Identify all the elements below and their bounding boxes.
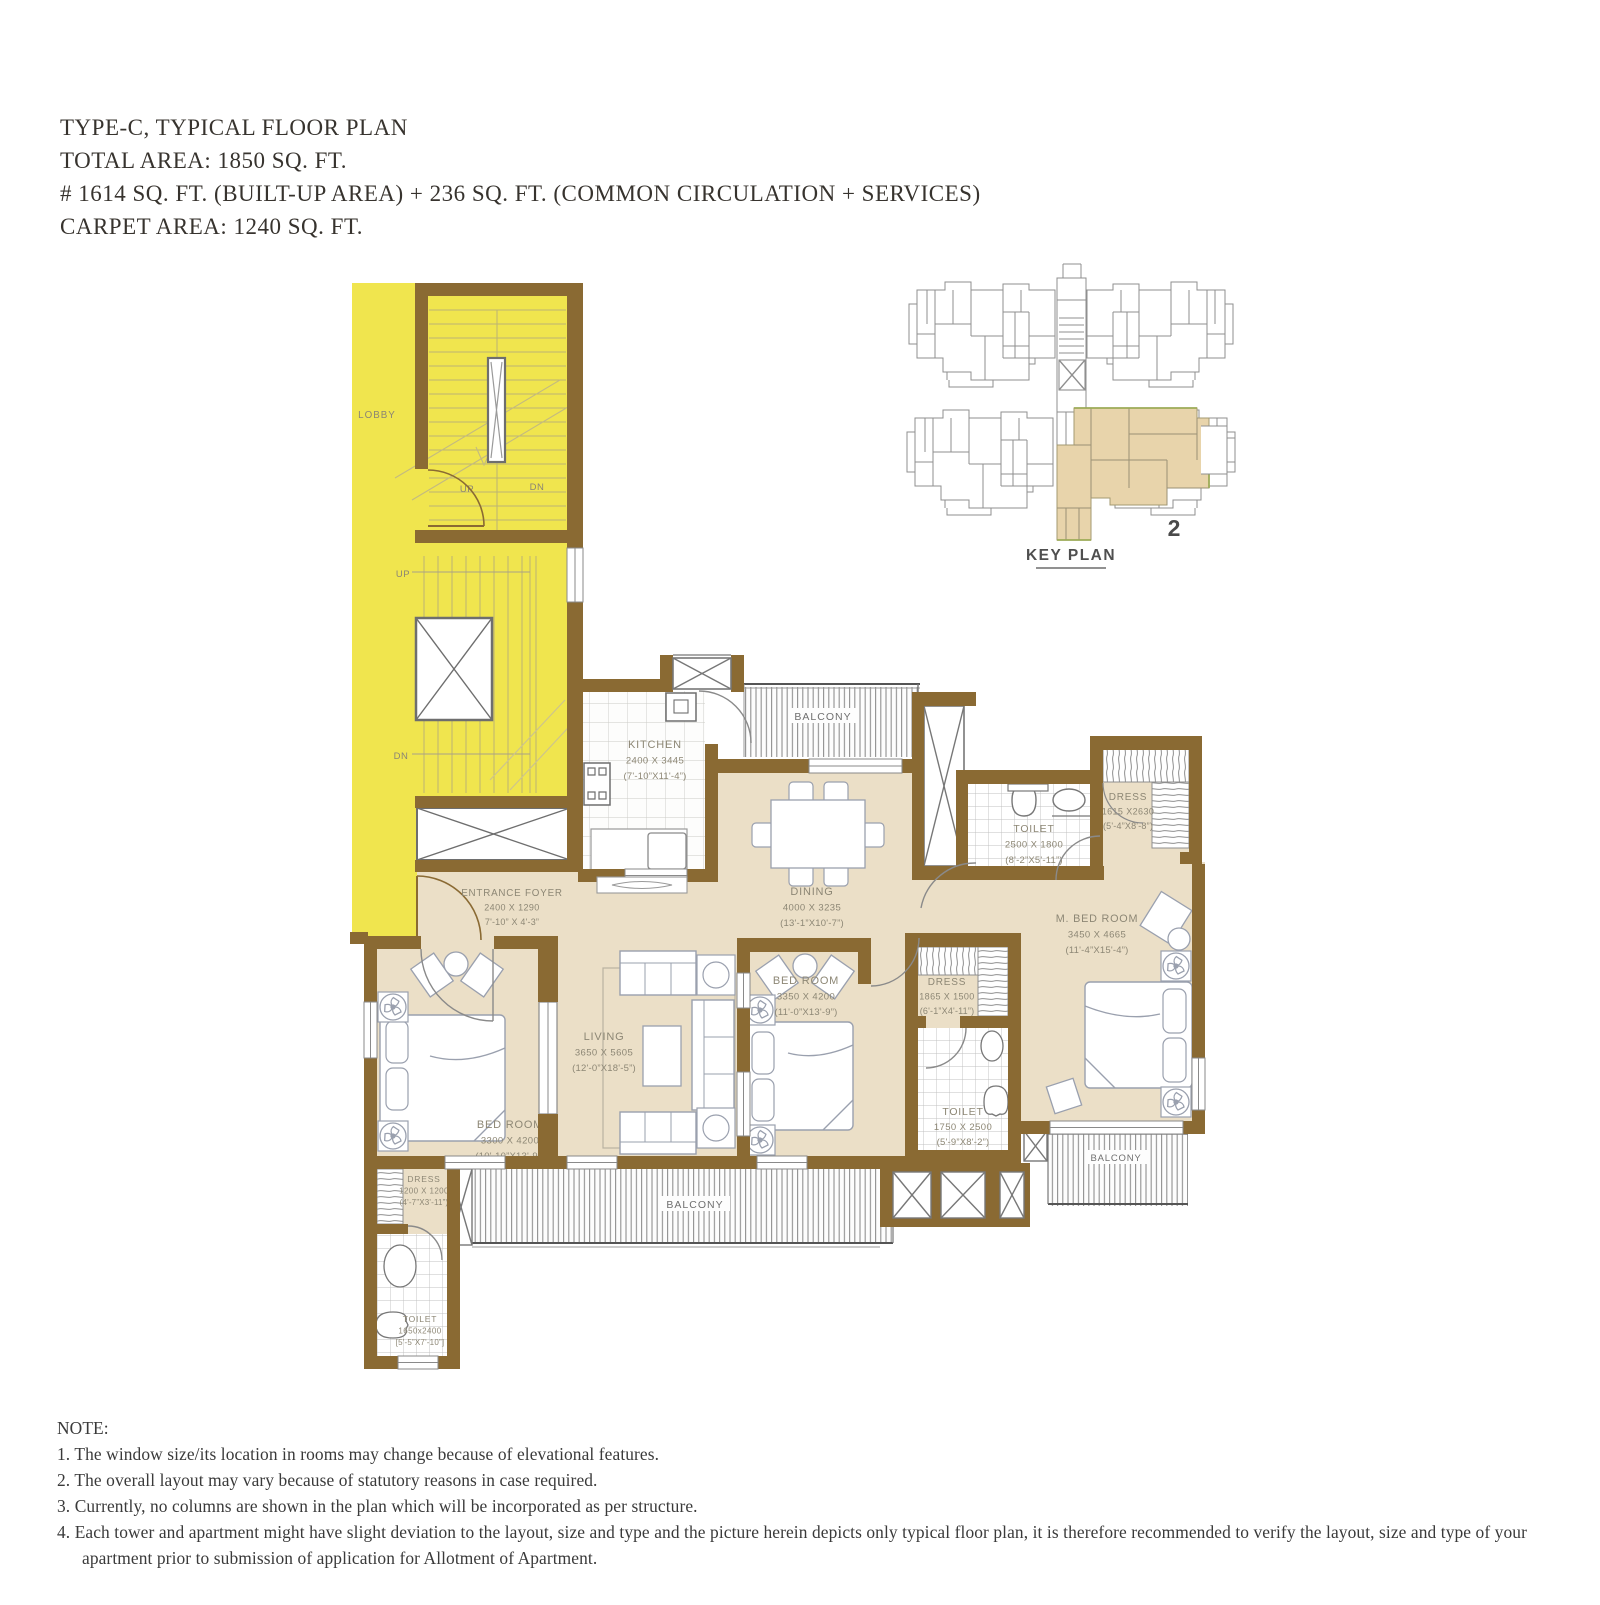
svg-text:(6'-1”X4'-11”): (6'-1”X4'-11”) xyxy=(920,1006,975,1016)
svg-text:BALCONY: BALCONY xyxy=(794,711,851,723)
svg-text:TOTAL AREA: 1850 SQ. FT.: TOTAL AREA: 1850 SQ. FT. xyxy=(60,148,347,173)
svg-text:4. Each tower and apartment m: 4. Each tower and apartment might have s… xyxy=(57,1522,1527,1542)
svg-text:DRESS: DRESS xyxy=(1109,792,1147,803)
svg-text:DRESS: DRESS xyxy=(407,1174,440,1184)
svg-text:7'-10” X 4'-3”: 7'-10” X 4'-3” xyxy=(485,917,539,927)
svg-text:1200 X 1200: 1200 X 1200 xyxy=(399,1187,449,1196)
svg-text:KITCHEN: KITCHEN xyxy=(628,739,682,751)
svg-text:ENTRANCE FOYER: ENTRANCE FOYER xyxy=(461,888,563,899)
svg-text:3. Currently, no columns are: 3. Currently, no columns are shown in th… xyxy=(57,1496,698,1516)
svg-text:CARPET AREA: 1240 SQ. FT.: CARPET AREA: 1240 SQ. FT. xyxy=(60,214,363,239)
svg-text:1615 X2630: 1615 X2630 xyxy=(1102,807,1155,817)
svg-text:LIVING: LIVING xyxy=(584,1031,625,1043)
svg-text:BED ROOM: BED ROOM xyxy=(477,1119,543,1131)
svg-text:(7'-10”X11'-4”): (7'-10”X11'-4”) xyxy=(624,771,687,782)
svg-text:1650x2400: 1650x2400 xyxy=(398,1327,441,1336)
svg-text:2400 X 3445: 2400 X 3445 xyxy=(626,756,684,767)
svg-text:1. The window size/its locati: 1. The window size/its location in rooms… xyxy=(57,1444,659,1464)
svg-text:1865 X 1500: 1865 X 1500 xyxy=(919,992,974,1002)
svg-text:TOILET: TOILET xyxy=(1013,823,1054,835)
svg-text:# 1614 SQ. FT. (BUILT-UP AREA): # 1614 SQ. FT. (BUILT-UP AREA) + 236 SQ.… xyxy=(60,181,981,206)
svg-text:BED ROOM: BED ROOM xyxy=(773,975,839,987)
svg-text:2500 X 1800: 2500 X 1800 xyxy=(1005,840,1063,851)
svg-text:TYPE-C, TYPICAL FLOOR PLAN: TYPE-C, TYPICAL FLOOR PLAN xyxy=(60,115,408,140)
svg-text:[5'-5”X7'-10”]: [5'-5”X7'-10”] xyxy=(396,1338,445,1347)
svg-text:apartment prior to submission: apartment prior to submission of applica… xyxy=(82,1548,597,1568)
svg-text:DRESS: DRESS xyxy=(928,977,966,988)
svg-text:UP: UP xyxy=(396,569,410,580)
svg-text:(13'-1”X10'-7”): (13'-1”X10'-7”) xyxy=(780,918,844,929)
svg-text:BALCONY: BALCONY xyxy=(666,1199,723,1211)
svg-text:3450 X 4665: 3450 X 4665 xyxy=(1068,930,1126,941)
svg-text:(11'-0”X13'-9”): (11'-0”X13'-9”) xyxy=(775,1007,838,1018)
svg-text:2: 2 xyxy=(1168,515,1181,541)
svg-text:DINING: DINING xyxy=(790,886,833,898)
svg-text:(5'-4”X8'-8”): (5'-4”X8'-8”) xyxy=(1103,821,1153,831)
svg-text:3650 X 5605: 3650 X 5605 xyxy=(575,1048,633,1059)
svg-text:LOBBY: LOBBY xyxy=(358,410,396,421)
svg-text:(4'-7”X3'-11”): (4'-7”X3'-11”) xyxy=(400,1198,449,1207)
svg-text:3300 X 4200: 3300 X 4200 xyxy=(481,1136,539,1147)
svg-text:M. BED ROOM: M. BED ROOM xyxy=(1056,913,1139,925)
svg-text:1750 X 2500: 1750 X 2500 xyxy=(934,1122,992,1133)
svg-text:(11'-4”X15'-4”): (11'-4”X15'-4”) xyxy=(1066,945,1129,956)
svg-text:(8'-2”X5'-11”): (8'-2”X5'-11”) xyxy=(1005,855,1062,866)
svg-text:TOILET: TOILET xyxy=(403,1314,437,1324)
svg-text:(12'-0”X18'-5”): (12'-0”X18'-5”) xyxy=(572,1063,636,1074)
svg-text:DN: DN xyxy=(530,482,545,493)
svg-text:(5'-9”X8'-2”): (5'-9”X8'-2”) xyxy=(937,1137,990,1148)
svg-text:DN: DN xyxy=(394,751,409,762)
svg-text:3350 X 4200: 3350 X 4200 xyxy=(777,992,835,1003)
svg-text:4000 X 3235: 4000 X 3235 xyxy=(783,903,841,914)
svg-text:NOTE:: NOTE: xyxy=(57,1418,109,1438)
svg-text:KEY PLAN: KEY PLAN xyxy=(1026,547,1116,564)
svg-text:2400 X 1290: 2400 X 1290 xyxy=(484,903,539,913)
svg-text:BALCONY: BALCONY xyxy=(1090,1153,1141,1164)
svg-text:TOILET: TOILET xyxy=(942,1106,983,1118)
svg-text:2. The overall layout may var: 2. The overall layout may vary because o… xyxy=(57,1470,598,1490)
